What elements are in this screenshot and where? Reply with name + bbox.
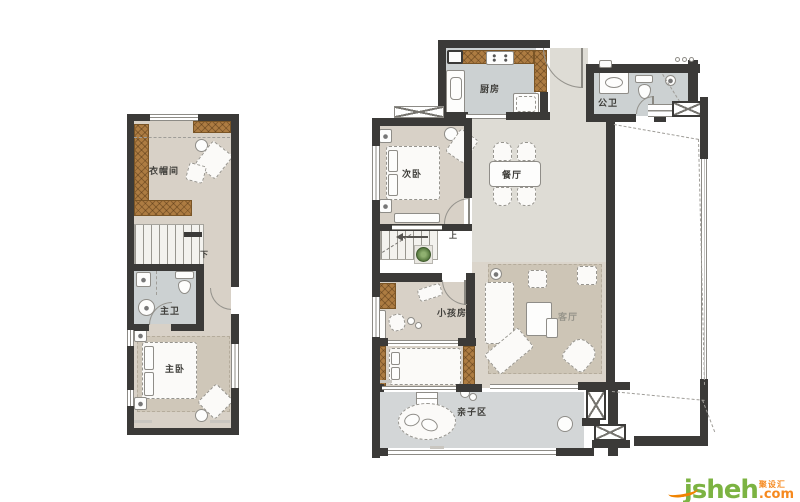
room-label-kids-room: 小孩房: [437, 306, 467, 319]
bath-sink-basin: [605, 77, 623, 88]
toilet: [175, 271, 194, 279]
window: [372, 146, 380, 200]
wall: [540, 92, 548, 114]
wall: [372, 273, 442, 282]
void-outline: [612, 391, 705, 401]
wall: [606, 114, 615, 384]
dimension-mark: [430, 446, 444, 449]
sliding-door: [490, 384, 578, 389]
wall: [506, 112, 550, 120]
fridge-inner: [516, 96, 536, 112]
wall: [634, 436, 708, 446]
wall: [556, 448, 594, 456]
wall: [592, 440, 630, 448]
gas-meter-dial: [689, 57, 694, 62]
bed-pillow: [391, 352, 400, 365]
wall: [578, 382, 630, 390]
pouf: [528, 270, 547, 288]
wall: [196, 264, 204, 331]
wall: [372, 338, 388, 346]
room-label-family-area: 亲子区: [457, 405, 487, 418]
sliding-door: [388, 340, 460, 344]
ac-platform: [394, 106, 444, 118]
nightstand: [134, 397, 147, 410]
bed-pillow: [144, 372, 154, 396]
watermark: jsheh 聚设汇 .com: [684, 480, 794, 501]
kitchen-sink: [450, 77, 462, 100]
nightstand: [379, 129, 392, 143]
dimension-mark: [380, 380, 392, 383]
window: [150, 114, 198, 121]
wall: [372, 118, 472, 126]
bench: [394, 213, 440, 223]
sliding-door: [392, 225, 442, 230]
stool: [557, 416, 573, 432]
dining-chair: [517, 142, 536, 161]
toy: [407, 317, 415, 325]
toy: [415, 322, 422, 329]
floor-lamp: [490, 268, 502, 280]
window: [231, 344, 239, 388]
hall-dining-floor: [472, 114, 606, 262]
bed-pillow: [388, 174, 398, 196]
toilet: [635, 75, 653, 83]
floorplan-canvas: 衣帽间 下 主卫 主卧: [0, 0, 800, 502]
window: [388, 450, 556, 455]
door-gap: [231, 287, 239, 314]
bed-pillow: [391, 367, 400, 380]
plant: [416, 247, 431, 262]
dining-chair: [517, 187, 536, 206]
side-table: [546, 318, 558, 338]
wall: [127, 264, 204, 271]
stair-handrail: [184, 232, 202, 237]
wall: [688, 60, 698, 104]
dining-chair: [493, 142, 512, 161]
watermark-suffix: .com: [759, 489, 794, 501]
wall: [127, 428, 239, 435]
duct-shaft: [594, 424, 626, 441]
washing-machine: [136, 272, 151, 287]
wardrobe-cabinet: [134, 200, 192, 216]
sliding-door: [466, 114, 506, 119]
stove: [486, 51, 514, 65]
wardrobe-cabinet: [193, 121, 231, 133]
room-label-kitchen: 厨房: [480, 82, 500, 95]
wall: [458, 338, 476, 346]
dimension-mark: [134, 420, 152, 423]
wall: [438, 40, 550, 48]
room-label-living: 客厅: [558, 310, 578, 323]
wall: [127, 114, 134, 435]
bedroom-door-leaf: [468, 198, 470, 224]
wall: [464, 118, 472, 198]
window: [127, 330, 134, 346]
bed-pillow: [144, 346, 154, 370]
stairs-upper: [134, 224, 204, 265]
duct-shaft: [586, 390, 606, 420]
wall: [171, 324, 204, 331]
wall: [372, 448, 388, 456]
ceiling-opening-line: [134, 137, 230, 138]
entry-door-leaf: [581, 48, 583, 88]
kids-door-leaf: [464, 280, 466, 305]
sliding-door: [382, 386, 456, 390]
wall: [700, 97, 708, 159]
pouf: [577, 266, 597, 285]
wall: [456, 384, 482, 392]
room-label-master-bedroom: 主卧: [165, 362, 185, 375]
window: [648, 104, 672, 117]
nightstand: [379, 199, 392, 213]
entry-door-arc: [543, 48, 583, 88]
gas-meter-dial: [682, 57, 687, 62]
room-label-dining: 餐厅: [502, 168, 522, 181]
void-outline: [614, 124, 699, 140]
room-label-master-bath: 主卫: [160, 304, 180, 317]
room-label-cloakroom: 衣帽间: [149, 164, 179, 177]
window: [372, 297, 380, 337]
dining-chair: [493, 187, 512, 206]
gas-meter-dial: [675, 57, 680, 62]
room-label-second-bedroom: 次卧: [402, 167, 422, 180]
dimension-mark: [210, 420, 230, 423]
bed-pillow: [388, 150, 398, 172]
stair-direction-up: 上: [449, 230, 457, 241]
bed-side-cabinet: [463, 346, 475, 386]
room-label-public-bath: 公卫: [598, 96, 618, 109]
wall: [466, 273, 475, 343]
toy: [469, 393, 477, 401]
flue-box: [447, 50, 463, 64]
shower-partition: [156, 271, 157, 295]
side-table: [195, 409, 208, 422]
wall-sink-box: [599, 60, 612, 68]
stair-direction-down: 下: [200, 249, 208, 260]
window: [127, 390, 134, 406]
